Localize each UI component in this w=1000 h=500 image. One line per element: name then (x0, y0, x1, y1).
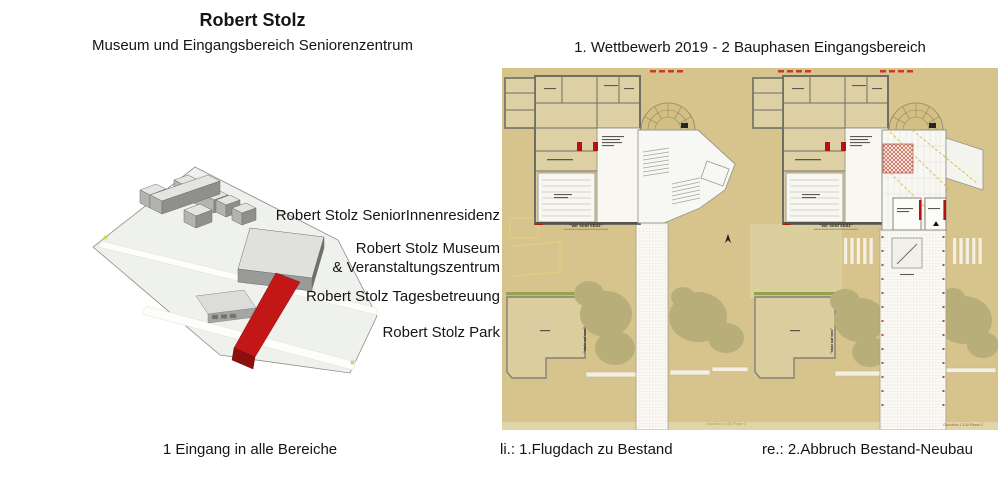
road-marker (104, 236, 107, 239)
caption-model: 1 Eingang in alle Bereiche (0, 441, 500, 458)
hedge (754, 292, 836, 295)
page-title: Robert Stolz (0, 10, 505, 31)
paved-forecourt (750, 224, 842, 298)
park-label-text: "stolz auf wos" (830, 328, 834, 354)
park-label-text: "stolz auf wos" (583, 327, 587, 353)
competition-title: 1. Wettbewerb 2019 - 2 Bauphasen Eingang… (500, 39, 1000, 56)
motto-text: "wir sind stolz" (819, 223, 852, 228)
caption-plan-left: li.: 1.Flugdach zu Bestand (500, 441, 673, 458)
floorplan-panel: "wir sind stolz" "stolz auf wos" Grundri… (502, 68, 998, 430)
stage-icon (681, 123, 688, 128)
floorplan-right: "wir sind stolz" "stolz auf wos" Grundri… (750, 68, 998, 430)
floorplan-left: "wir sind stolz" "stolz auf wos" Grundri… (502, 68, 750, 430)
scale-note: Grundriss 1:100 Phase 2 (943, 423, 983, 427)
page-subtitle: Museum und Eingangsbereich Seniorenzentr… (0, 37, 505, 54)
label-park: Robert Stolz Park (382, 324, 500, 341)
road-marker (351, 361, 354, 364)
caption-plan-right: re.: 2.Abbruch Bestand-Neubau (762, 441, 973, 458)
scale-note: Grundriss 1:100 Phase 1 (706, 422, 746, 426)
demolition-hatch (883, 144, 913, 173)
presentation-slide: Robert Stolz Museum und Eingangsbereich … (0, 0, 1000, 500)
site-model-3d (88, 158, 378, 388)
pedestrian-path (636, 223, 668, 430)
hedge (506, 292, 586, 295)
stage-icon (929, 123, 936, 128)
motto-text: "wir sind stolz" (569, 223, 602, 228)
